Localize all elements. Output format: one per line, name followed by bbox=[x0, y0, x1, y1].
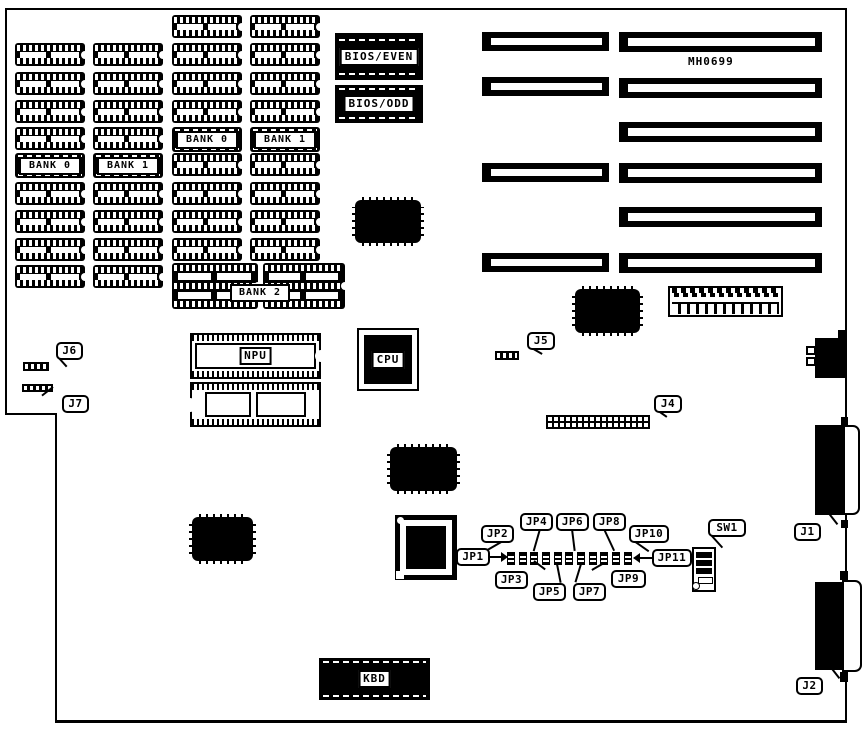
memory-chip bbox=[15, 210, 85, 233]
sw1-dot bbox=[692, 582, 700, 590]
bank2-label: BANK 2 bbox=[230, 284, 290, 302]
expansion-slot-long bbox=[619, 253, 822, 273]
callout-jp5: JP5 bbox=[533, 583, 566, 601]
expansion-slot-long bbox=[619, 78, 822, 98]
din-pin bbox=[806, 346, 816, 355]
keyboard-controller: KBD bbox=[319, 658, 430, 700]
empty-dip-socket bbox=[190, 382, 321, 427]
callout-j7: J7 bbox=[62, 395, 89, 413]
memory-chip bbox=[172, 100, 242, 123]
callout-j5: J5 bbox=[527, 332, 555, 350]
memory-chip bbox=[250, 182, 320, 205]
expansion-slot-long bbox=[619, 32, 822, 52]
callout-jp2: JP2 bbox=[481, 525, 514, 543]
memory-chip bbox=[172, 238, 242, 261]
sw1-dip-switch bbox=[692, 547, 716, 592]
bank0-label: BANK 0 bbox=[19, 157, 81, 175]
memory-chip bbox=[93, 265, 163, 288]
j5-connector bbox=[495, 351, 519, 360]
memory-chip bbox=[15, 100, 85, 123]
memory-chip bbox=[250, 43, 320, 66]
board-edge-top bbox=[5, 8, 847, 10]
callout-jp3: JP3 bbox=[495, 571, 528, 589]
bank1-label: BANK 1 bbox=[97, 157, 159, 175]
j1-connector bbox=[815, 425, 845, 515]
din-connector-step bbox=[838, 330, 847, 340]
bank0-label-chip: BANK 0 bbox=[172, 127, 242, 152]
pin-row bbox=[192, 384, 319, 390]
jp1-arrowhead bbox=[501, 552, 508, 562]
callout-jp11: JP11 bbox=[652, 549, 692, 567]
din-pin bbox=[806, 357, 816, 366]
jumper-jp8 bbox=[589, 552, 597, 565]
j2-bracket bbox=[842, 580, 862, 672]
memory-chip bbox=[250, 15, 320, 38]
jumper-jp1 bbox=[507, 552, 515, 565]
motherboard-diagram: MH0699 BANK 0 BANK 1 BANK 0 BANK 1 BANK … bbox=[0, 0, 864, 732]
memory-chip bbox=[250, 153, 320, 176]
memory-chip bbox=[172, 43, 242, 66]
memory-chip bbox=[15, 238, 85, 261]
mount-square bbox=[841, 520, 848, 528]
bios-odd-chip: BIOS/ODD bbox=[335, 85, 423, 123]
power-connector bbox=[668, 286, 783, 317]
memory-chip bbox=[93, 100, 163, 123]
callout-j1: J1 bbox=[794, 523, 821, 541]
board-part-number: MH0699 bbox=[688, 55, 734, 68]
ic-chip bbox=[390, 447, 457, 491]
pin1-dot bbox=[397, 517, 404, 524]
bank0-label-chip: BANK 0 bbox=[15, 153, 85, 178]
bank1-label-chip: BANK 1 bbox=[250, 127, 320, 152]
callout-jp8: JP8 bbox=[593, 513, 626, 531]
pin-row bbox=[192, 371, 319, 377]
pin-row bbox=[192, 419, 319, 425]
callout-jp10: JP10 bbox=[629, 525, 669, 543]
callout-tail bbox=[533, 529, 541, 552]
jp11-arrowhead bbox=[633, 553, 640, 563]
cpu-label: CPU bbox=[372, 351, 405, 369]
bank0-label: BANK 0 bbox=[176, 131, 238, 149]
board-edge-notch bbox=[5, 413, 57, 415]
callout-jp6: JP6 bbox=[556, 513, 589, 531]
expansion-slot-long bbox=[619, 207, 822, 227]
memory-chip bbox=[172, 72, 242, 95]
socket-notch bbox=[315, 350, 321, 362]
callout-j4: J4 bbox=[654, 395, 682, 413]
jumper-jp10 bbox=[612, 552, 620, 565]
callout-j6: J6 bbox=[56, 342, 83, 360]
j6-connector bbox=[23, 362, 49, 371]
callout-jp1: JP1 bbox=[456, 548, 490, 566]
callout-tail bbox=[603, 529, 615, 552]
callout-tail bbox=[574, 564, 581, 583]
pin-row bbox=[192, 335, 319, 341]
kbd-label: KBD bbox=[358, 670, 391, 688]
socket-notch bbox=[190, 398, 196, 412]
expansion-slot-short bbox=[482, 253, 609, 272]
bios-even-label: BIOS/EVEN bbox=[340, 48, 419, 66]
bank1-label-chip: BANK 1 bbox=[93, 153, 163, 178]
memory-chip bbox=[15, 127, 85, 150]
memory-chip bbox=[250, 210, 320, 233]
jumper-jp2 bbox=[519, 552, 527, 565]
din-connector bbox=[815, 338, 845, 378]
plcc-chip bbox=[395, 515, 457, 580]
memory-chip bbox=[172, 182, 242, 205]
callout-jp4: JP4 bbox=[520, 513, 553, 531]
callout-sw1: SW1 bbox=[708, 519, 746, 537]
callout-j2: J2 bbox=[796, 677, 823, 695]
npu-label: NPU bbox=[239, 347, 272, 365]
memory-chip bbox=[93, 238, 163, 261]
memory-chip bbox=[15, 43, 85, 66]
memory-chip bbox=[15, 265, 85, 288]
mount-square bbox=[840, 571, 848, 580]
mount-square bbox=[841, 417, 848, 425]
expansion-slot-long bbox=[619, 122, 822, 142]
memory-chip bbox=[250, 100, 320, 123]
expansion-slot-short bbox=[482, 77, 609, 96]
jumper-jp6 bbox=[565, 552, 573, 565]
callout-jp7: JP7 bbox=[573, 583, 606, 601]
jumper-jp4 bbox=[542, 552, 550, 565]
ic-chip bbox=[355, 200, 421, 243]
callout-tail bbox=[556, 564, 562, 583]
board-edge-left-upper bbox=[5, 8, 7, 415]
memory-chip bbox=[93, 127, 163, 150]
jumper-jp11 bbox=[624, 552, 632, 565]
mount-square bbox=[840, 672, 848, 682]
cpu-socket: CPU bbox=[357, 328, 419, 391]
memory-chip bbox=[250, 238, 320, 261]
memory-chip bbox=[172, 210, 242, 233]
bank1-label: BANK 1 bbox=[254, 131, 316, 149]
expansion-slot-short bbox=[482, 163, 609, 182]
bios-odd-label: BIOS/ODD bbox=[344, 95, 415, 113]
j2-connector bbox=[815, 582, 842, 670]
bios-even-chip: BIOS/EVEN bbox=[335, 33, 423, 80]
expansion-slot-long bbox=[619, 163, 822, 183]
memory-chip bbox=[93, 43, 163, 66]
j4-header bbox=[546, 415, 650, 429]
board-edge-bottom bbox=[56, 720, 847, 723]
callout-jp9: JP9 bbox=[611, 570, 646, 588]
ic-chip bbox=[575, 289, 640, 333]
memory-chip bbox=[93, 182, 163, 205]
memory-chip bbox=[15, 182, 85, 205]
memory-chip bbox=[172, 15, 242, 38]
npu-socket: NPU bbox=[190, 333, 321, 379]
memory-chip bbox=[250, 72, 320, 95]
callout-tail bbox=[571, 529, 576, 551]
memory-chip bbox=[15, 72, 85, 95]
expansion-slot-short bbox=[482, 32, 609, 51]
memory-chip bbox=[172, 153, 242, 176]
board-edge-left-lower bbox=[55, 413, 57, 723]
memory-chip bbox=[93, 72, 163, 95]
ic-chip bbox=[192, 517, 253, 561]
memory-chip bbox=[93, 210, 163, 233]
